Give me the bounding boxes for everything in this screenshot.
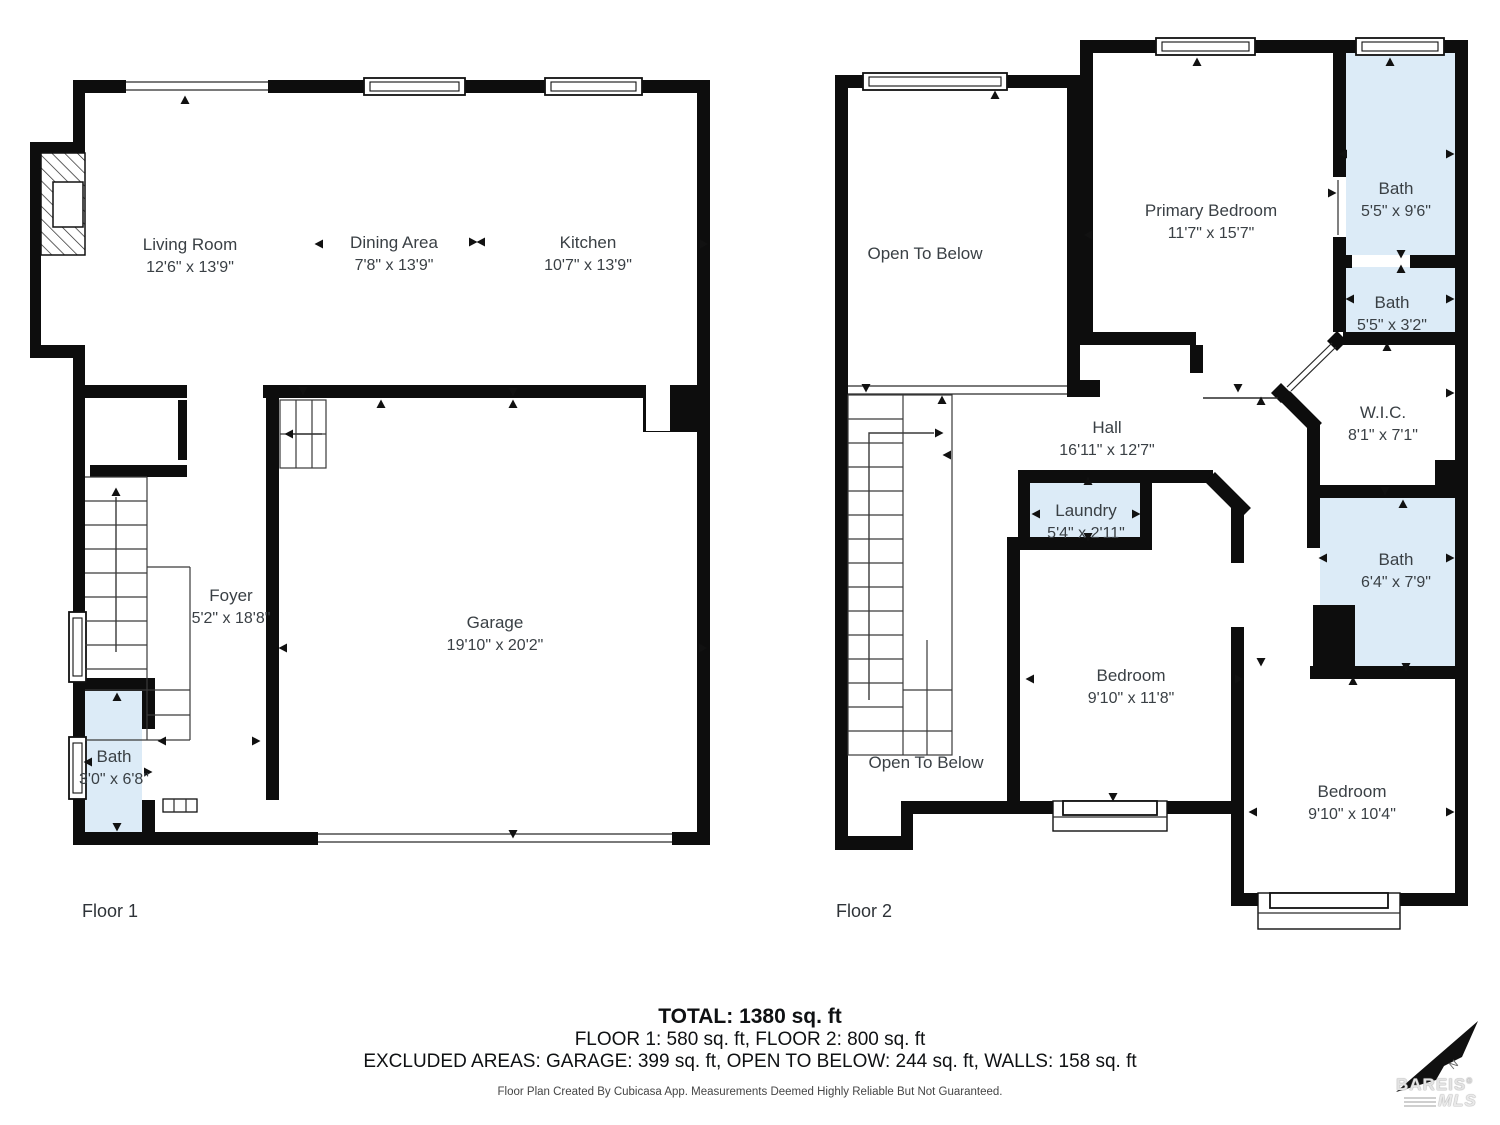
room-label-laundry: Laundry 5'4" x 2'11" [1047,499,1125,545]
floor1-label: Floor 1 [82,901,138,922]
room-label-bedroom-corner: Bedroom 9'10" x 10'4" [1308,780,1396,826]
summary-floors: FLOOR 1: 580 sq. ft, FLOOR 2: 800 sq. ft [0,1029,1500,1051]
room-label-dining-area: Dining Area 7'8" x 13'9" [350,231,438,277]
summary-disclaimer: Floor Plan Created By Cubicasa App. Meas… [0,1086,1500,1098]
summary-excluded: EXCLUDED AREAS: GARAGE: 399 sq. ft, OPEN… [0,1051,1500,1073]
room-label-open-to-below-bottom: Open To Below [869,751,984,774]
plan-markers [84,58,1455,839]
floor2-diagonal-walls [1210,396,1317,513]
garage-door-notch [646,386,670,431]
summary-total: TOTAL: 1380 sq. ft [0,1005,1500,1029]
logo-bars [1404,1095,1436,1107]
room-label-hall: Hall 16'11" x 12'7" [1059,416,1154,462]
room-label-primary-bedroom: Primary Bedroom 11'7" x 15'7" [1145,199,1277,245]
floor2-stairs [848,395,952,755]
room-label-garage: Garage 19'10" x 20'2" [447,611,544,657]
room-label-bath-hall: Bath 6'4" x 7'9" [1361,548,1431,594]
fireplace [41,153,85,255]
wet-room-fills [85,53,1455,832]
logo-mls-text: MLS [1438,1091,1477,1111]
room-label-bedroom-mid: Bedroom 9'10" x 11'8" [1088,664,1175,710]
room-label-kitchen: Kitchen 10'7" x 13'9" [544,231,632,277]
floorplan-page: Living Room 12'6" x 13'9" Dining Area 7'… [0,0,1500,1125]
room-label-bath-ensuite: Bath 5'5" x 9'6" [1361,177,1431,223]
floor1-thin-lines [126,82,672,842]
room-label-bath-small: Bath 5'5" x 3'2" [1357,291,1427,337]
bareis-mls-logo: N BAREIS® MLS [1390,1019,1490,1119]
room-label-open-to-below-top: Open To Below [868,242,983,265]
floorplan-drawing [0,0,1500,1125]
room-label-foyer: Foyer 5'2" x 18'8" [192,584,271,630]
floor2-label: Floor 2 [836,901,892,922]
room-label-wic: W.I.C. 8'1" x 7'1" [1348,401,1418,447]
room-label-living-room: Living Room 12'6" x 13'9" [143,233,238,279]
room-label-bath-f1: Bath 3'0" x 6'8" [79,745,149,791]
